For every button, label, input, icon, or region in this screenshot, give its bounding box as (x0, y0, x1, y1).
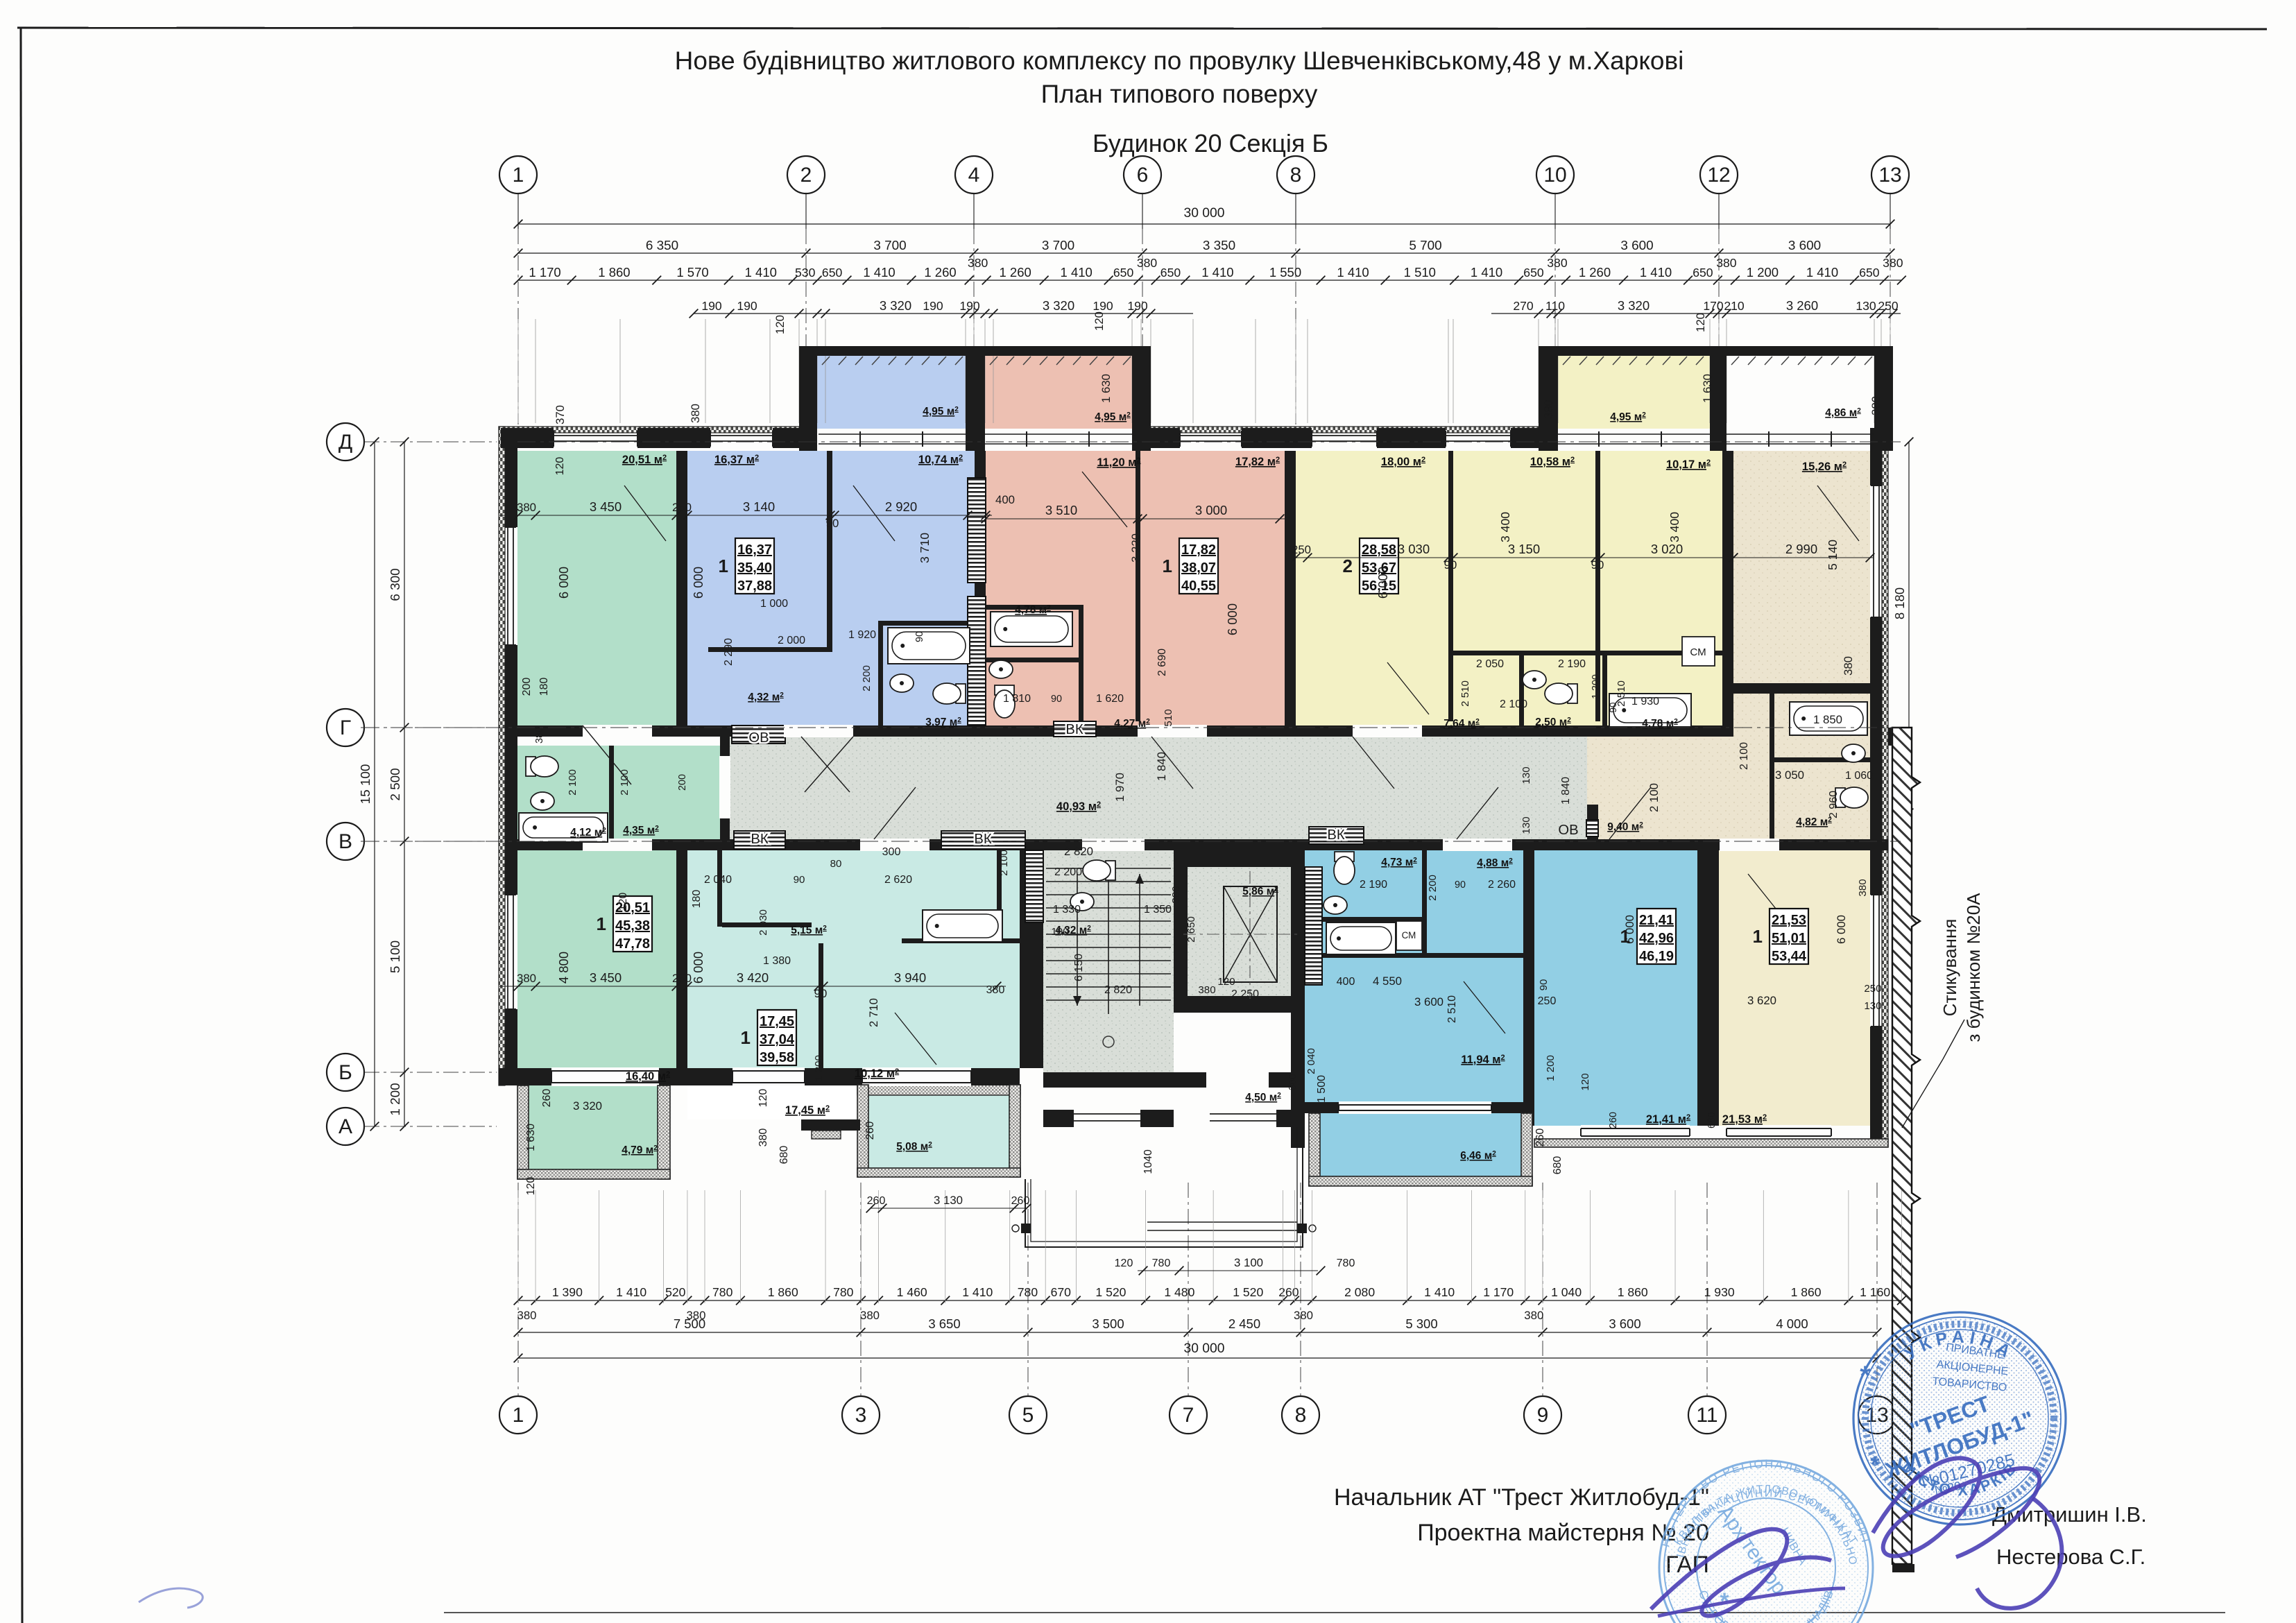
svg-text:100: 100 (1051, 926, 1068, 938)
svg-text:10,74 м2: 10,74 м2 (918, 454, 963, 466)
svg-text:30 000: 30 000 (1184, 206, 1225, 221)
svg-text:380: 380 (534, 727, 545, 744)
svg-text:2 100: 2 100 (998, 850, 1010, 876)
svg-text:3 600: 3 600 (1609, 1316, 1640, 1331)
svg-text:250: 250 (672, 501, 692, 514)
svg-text:3 140: 3 140 (743, 499, 775, 514)
svg-text:15,26 м2: 15,26 м2 (1802, 461, 1847, 473)
svg-text:46,19: 46,19 (1639, 949, 1674, 964)
svg-text:260: 260 (1011, 1195, 1030, 1207)
svg-text:10,12 м2: 10,12 м2 (855, 1067, 899, 1080)
svg-text:2 100: 2 100 (619, 769, 631, 796)
svg-text:2 710: 2 710 (867, 998, 880, 1027)
svg-text:190: 190 (1093, 299, 1113, 313)
svg-text:1: 1 (513, 1404, 524, 1427)
svg-text:530: 530 (795, 266, 816, 280)
svg-text:90: 90 (814, 987, 828, 1000)
svg-text:260: 260 (864, 1122, 876, 1140)
svg-text:1 510: 1 510 (1404, 265, 1436, 280)
svg-text:3 220: 3 220 (1129, 533, 1142, 563)
svg-text:10,58 м2: 10,58 м2 (1530, 456, 1575, 468)
svg-text:1 480: 1 480 (1164, 1285, 1194, 1299)
svg-text:1: 1 (1753, 926, 1763, 947)
svg-text:250: 250 (1878, 299, 1899, 313)
svg-text:2 450: 2 450 (1228, 1316, 1260, 1331)
svg-text:1 520: 1 520 (1233, 1285, 1263, 1299)
svg-text:ВК: ВК (974, 832, 991, 847)
svg-text:3 700: 3 700 (873, 239, 906, 253)
svg-text:2 030: 2 030 (757, 909, 769, 936)
svg-text:380: 380 (1170, 886, 1182, 903)
svg-text:1 260: 1 260 (1579, 265, 1611, 280)
svg-text:ВК: ВК (1327, 827, 1344, 843)
svg-text:3 260: 3 260 (1786, 298, 1818, 313)
svg-text:680: 680 (1552, 1156, 1563, 1175)
svg-text:3 450: 3 450 (590, 970, 622, 985)
svg-text:1 860: 1 860 (768, 1285, 798, 1299)
svg-text:2 990: 2 990 (1785, 542, 1817, 556)
svg-text:120: 120 (554, 457, 566, 476)
svg-text:780: 780 (1018, 1285, 1038, 1299)
svg-text:4,79 м2: 4,79 м2 (622, 1144, 658, 1156)
svg-text:21,53: 21,53 (1772, 913, 1806, 928)
svg-text:ВК: ВК (751, 832, 768, 847)
svg-text:12: 12 (1707, 164, 1730, 187)
svg-text:План типового поверху: План типового поверху (1041, 80, 1318, 108)
svg-text:3 320: 3 320 (1043, 298, 1074, 313)
svg-text:1 410: 1 410 (616, 1285, 646, 1299)
svg-text:17,82 м2: 17,82 м2 (1235, 456, 1280, 468)
svg-text:Б: Б (339, 1061, 352, 1084)
svg-text:2 960: 2 960 (1828, 791, 1840, 818)
svg-text:20,51 м2: 20,51 м2 (622, 454, 667, 466)
svg-text:6 000: 6 000 (1376, 567, 1390, 599)
svg-text:1 930: 1 930 (1704, 1285, 1735, 1299)
svg-text:250: 250 (1864, 983, 1881, 995)
svg-text:7 500: 7 500 (674, 1316, 705, 1331)
svg-text:1 060: 1 060 (1845, 770, 1873, 782)
svg-text:3 400: 3 400 (1498, 512, 1512, 542)
svg-text:2 100: 2 100 (567, 769, 579, 796)
svg-text:2 000: 2 000 (778, 635, 805, 646)
svg-text:1 200: 1 200 (813, 1055, 825, 1081)
svg-text:1 330: 1 330 (1053, 904, 1081, 916)
svg-text:ОВ: ОВ (748, 730, 769, 746)
svg-text:2 500: 2 500 (388, 768, 403, 800)
svg-text:*: * (1870, 1452, 1880, 1478)
svg-text:780: 780 (712, 1285, 733, 1299)
svg-text:ОВ: ОВ (1558, 823, 1578, 838)
svg-text:4,95 м2: 4,95 м2 (923, 406, 959, 418)
svg-text:5 100: 5 100 (388, 941, 403, 973)
svg-text:4,32 м2: 4,32 м2 (748, 692, 784, 703)
svg-text:380: 380 (1524, 1309, 1543, 1322)
svg-text:780: 780 (1152, 1257, 1171, 1269)
svg-text:3,97 м2: 3,97 м2 (925, 716, 961, 728)
svg-text:3 600: 3 600 (1788, 239, 1821, 253)
svg-text:1 260: 1 260 (1000, 265, 1031, 280)
svg-text:2 100: 2 100 (1500, 698, 1527, 710)
svg-text:680: 680 (778, 1146, 790, 1165)
svg-text:780: 780 (833, 1285, 854, 1299)
svg-text:15 100: 15 100 (359, 764, 373, 805)
svg-text:2 190: 2 190 (1360, 879, 1387, 891)
svg-text:90: 90 (1051, 694, 1062, 705)
svg-text:2 200: 2 200 (861, 665, 873, 692)
svg-text:1 410: 1 410 (1806, 265, 1838, 280)
svg-text:40,93 м2: 40,93 м2 (1056, 800, 1101, 813)
svg-text:2 050: 2 050 (1476, 658, 1504, 670)
svg-text:21,53 м2: 21,53 м2 (1722, 1113, 1767, 1126)
svg-text:90: 90 (826, 517, 839, 530)
svg-text:3 500: 3 500 (1092, 1316, 1124, 1331)
svg-text:2 100: 2 100 (1647, 783, 1661, 812)
svg-text:1040: 1040 (1142, 1149, 1154, 1174)
svg-text:10,17 м2: 10,17 м2 (1666, 458, 1711, 471)
svg-text:380: 380 (1842, 656, 1855, 676)
svg-text:5,08 м2: 5,08 м2 (896, 1141, 932, 1153)
svg-text:380: 380 (1883, 256, 1903, 270)
svg-text:250: 250 (672, 972, 692, 985)
svg-text:3 700: 3 700 (1042, 239, 1074, 253)
svg-text:670: 670 (1051, 1285, 1072, 1299)
svg-text:1 260: 1 260 (924, 265, 956, 280)
svg-text:4,78 м2: 4,78 м2 (1015, 604, 1051, 616)
svg-text:90: 90 (914, 631, 925, 642)
svg-text:4,88 м2: 4,88 м2 (1477, 857, 1513, 869)
svg-text:650: 650 (1523, 266, 1544, 280)
svg-text:40,55: 40,55 (1181, 578, 1216, 594)
svg-text:2 690: 2 690 (1156, 649, 1168, 676)
svg-text:170: 170 (1703, 299, 1724, 313)
svg-text:80: 80 (830, 858, 842, 870)
svg-text:СМ: СМ (1402, 930, 1416, 941)
svg-text:6 000: 6 000 (1225, 603, 1240, 635)
svg-text:3: 3 (855, 1404, 867, 1427)
svg-text:4: 4 (968, 164, 980, 187)
svg-text:17,82: 17,82 (1181, 542, 1216, 558)
svg-text:Г: Г (340, 716, 351, 739)
svg-text:1 000: 1 000 (760, 598, 788, 610)
svg-text:250: 250 (1538, 995, 1557, 1007)
svg-text:380: 380 (860, 1309, 880, 1322)
svg-text:680: 680 (1706, 1112, 1717, 1128)
svg-text:4,95 м2: 4,95 м2 (1095, 411, 1131, 423)
svg-text:Будинок 20 Секція Б: Будинок 20 Секція Б (1093, 129, 1328, 157)
svg-text:6 000: 6 000 (691, 952, 705, 984)
svg-text:3 000: 3 000 (1195, 503, 1227, 517)
svg-text:4 550: 4 550 (1373, 974, 1402, 988)
svg-text:260: 260 (541, 1089, 553, 1108)
svg-text:380: 380 (689, 404, 702, 423)
svg-text:260: 260 (867, 1195, 886, 1207)
svg-text:90: 90 (1591, 558, 1604, 572)
svg-text:380: 380 (1542, 400, 1555, 419)
svg-text:1: 1 (513, 164, 524, 187)
svg-text:5 140: 5 140 (1826, 540, 1840, 570)
svg-text:6 350: 6 350 (646, 239, 678, 253)
svg-text:180: 180 (691, 890, 703, 909)
svg-text:270: 270 (1513, 299, 1534, 313)
svg-text:1: 1 (741, 1027, 751, 1048)
svg-text:120: 120 (617, 893, 629, 911)
svg-text:4,12 м2: 4,12 м2 (570, 827, 606, 839)
svg-text:120: 120 (773, 315, 787, 334)
svg-text:2 200: 2 200 (1054, 866, 1082, 878)
svg-text:1 380: 1 380 (763, 955, 791, 967)
svg-text:2 510: 2 510 (1459, 680, 1471, 707)
svg-text:380: 380 (1294, 1309, 1313, 1322)
svg-text:51,01: 51,01 (1772, 931, 1806, 946)
svg-text:3 030: 3 030 (1398, 542, 1430, 556)
svg-text:3 020: 3 020 (1651, 542, 1683, 556)
svg-text:2 650: 2 650 (1185, 916, 1197, 943)
svg-text:8: 8 (1295, 1404, 1307, 1427)
svg-text:1 200: 1 200 (1545, 1055, 1557, 1081)
svg-text:1 410: 1 410 (1424, 1285, 1455, 1299)
svg-text:1 500: 1 500 (1316, 1075, 1328, 1103)
svg-text:4,50 м2: 4,50 м2 (1245, 1092, 1281, 1104)
svg-text:6 000: 6 000 (556, 567, 571, 599)
svg-text:17,45 м2: 17,45 м2 (785, 1104, 830, 1117)
svg-text:5 700: 5 700 (1409, 239, 1441, 253)
svg-text:СМ: СМ (1690, 646, 1706, 658)
svg-text:210: 210 (1724, 299, 1745, 313)
svg-text:3 320: 3 320 (880, 298, 911, 313)
svg-text:10: 10 (1543, 164, 1566, 187)
svg-text:5,86 м2: 5,86 м2 (1242, 886, 1278, 898)
svg-text:3 600: 3 600 (1620, 239, 1653, 253)
svg-text:1 520: 1 520 (1095, 1285, 1126, 1299)
svg-text:1 040: 1 040 (1551, 1285, 1582, 1299)
svg-text:90: 90 (794, 874, 805, 886)
svg-text:8 180: 8 180 (1892, 587, 1907, 619)
svg-text:2 620: 2 620 (884, 874, 912, 886)
svg-text:380: 380 (1137, 256, 1158, 270)
svg-text:6 000: 6 000 (1623, 915, 1636, 944)
svg-text:370: 370 (554, 405, 567, 424)
svg-text:1 390: 1 390 (552, 1285, 583, 1299)
svg-text:120: 120 (1115, 1257, 1133, 1269)
svg-text:1 460: 1 460 (897, 1285, 927, 1299)
svg-text:2 200: 2 200 (1427, 875, 1439, 901)
svg-text:1 550: 1 550 (1269, 265, 1301, 280)
svg-text:120: 120 (1093, 311, 1106, 331)
svg-text:380: 380 (1869, 396, 1883, 415)
svg-text:1: 1 (597, 913, 606, 934)
svg-text:120: 120 (1579, 1073, 1591, 1090)
svg-text:90: 90 (1608, 703, 1618, 713)
svg-text:1 840: 1 840 (1560, 777, 1572, 805)
svg-text:21,41 м2: 21,41 м2 (1646, 1113, 1690, 1126)
svg-text:1 350: 1 350 (1144, 904, 1172, 916)
svg-text:16,37 м2: 16,37 м2 (714, 454, 759, 466)
svg-text:120: 120 (757, 1089, 769, 1108)
svg-text:39,58: 39,58 (760, 1050, 794, 1065)
svg-text:1 410: 1 410 (1471, 265, 1502, 280)
svg-text:*: * (1860, 1361, 1871, 1391)
svg-text:1 170: 1 170 (529, 265, 560, 280)
svg-text:1: 1 (1163, 556, 1172, 576)
svg-text:6 000: 6 000 (691, 567, 705, 599)
svg-text:А: А (339, 1115, 352, 1138)
svg-text:380: 380 (1857, 879, 1869, 896)
svg-text:130: 130 (1520, 816, 1532, 834)
svg-text:3 150: 3 150 (1508, 542, 1540, 556)
svg-text:9,40 м2: 9,40 м2 (1607, 821, 1643, 833)
svg-text:11,20 м2: 11,20 м2 (1097, 456, 1140, 469)
svg-text:ВК: ВК (1065, 722, 1083, 737)
svg-text:1 200: 1 200 (388, 1083, 403, 1115)
svg-text:2 290: 2 290 (723, 638, 735, 666)
svg-text:4,73 м2: 4,73 м2 (1381, 857, 1417, 868)
svg-text:2,50 м2: 2,50 м2 (1535, 716, 1571, 728)
svg-text:1 630: 1 630 (1099, 374, 1113, 403)
svg-text:3 710: 3 710 (918, 533, 932, 563)
svg-text:3 510: 3 510 (1045, 503, 1077, 517)
svg-text:650: 650 (1113, 266, 1134, 280)
svg-text:190: 190 (959, 299, 980, 313)
svg-text:21,41: 21,41 (1639, 913, 1674, 928)
svg-text:35,40: 35,40 (737, 560, 772, 576)
svg-text:3 650: 3 650 (928, 1316, 960, 1331)
svg-text:7: 7 (1183, 1404, 1194, 1427)
svg-text:200: 200 (521, 678, 533, 696)
svg-text:2: 2 (1343, 556, 1353, 576)
svg-text:3 450: 3 450 (590, 499, 622, 514)
svg-text:1 160: 1 160 (1860, 1285, 1890, 1299)
svg-text:3 400: 3 400 (1668, 512, 1681, 542)
svg-text:90: 90 (1538, 979, 1550, 991)
svg-text:42,96: 42,96 (1639, 931, 1674, 946)
svg-text:4,35 м2: 4,35 м2 (623, 825, 659, 836)
svg-text:3 940: 3 940 (894, 970, 926, 985)
svg-text:380: 380 (517, 1309, 537, 1322)
svg-text:130: 130 (1864, 1000, 1881, 1012)
svg-text:130: 130 (1520, 766, 1532, 784)
svg-text:2 250: 2 250 (1231, 988, 1259, 1000)
svg-text:200: 200 (677, 774, 688, 791)
svg-text:9: 9 (1537, 1404, 1549, 1427)
svg-text:130: 130 (1856, 299, 1876, 313)
svg-text:6 150: 6 150 (1073, 954, 1085, 981)
svg-text:Стикування: Стикування (1939, 919, 1960, 1017)
svg-text:47,78: 47,78 (615, 936, 650, 952)
svg-text:16,37: 16,37 (737, 542, 772, 558)
svg-text:6 000: 6 000 (1835, 915, 1848, 944)
svg-text:650: 650 (822, 266, 843, 280)
svg-text:4 000: 4 000 (1776, 1316, 1808, 1331)
svg-text:16,40 м2: 16,40 м2 (626, 1070, 670, 1083)
svg-text:11: 11 (1696, 1404, 1717, 1427)
svg-text:650: 650 (1859, 266, 1880, 280)
svg-text:30 000: 30 000 (1184, 1341, 1225, 1356)
svg-text:120: 120 (1217, 976, 1235, 988)
svg-text:1 200: 1 200 (1591, 674, 1602, 699)
svg-text:1 630: 1 630 (525, 1124, 537, 1151)
svg-text:1 410: 1 410 (1061, 265, 1093, 280)
svg-text:3 050: 3 050 (1775, 768, 1804, 782)
svg-text:3 100: 3 100 (1234, 1256, 1263, 1269)
svg-text:18,00 м2: 18,00 м2 (1381, 456, 1425, 468)
svg-text:4 800: 4 800 (556, 952, 571, 984)
svg-text:37,04: 37,04 (760, 1032, 795, 1047)
svg-text:Начальник АТ "Трест Житлобуд-1: Начальник АТ "Трест Житлобуд-1" (1334, 1484, 1709, 1511)
svg-text:3 350: 3 350 (1203, 239, 1235, 253)
svg-text:1 410: 1 410 (1640, 265, 1672, 280)
svg-text:Дмитришин І.В.: Дмитришин І.В. (1992, 1502, 2147, 1527)
svg-text:90: 90 (1444, 558, 1457, 572)
svg-text:90: 90 (1455, 879, 1466, 891)
svg-text:2 190: 2 190 (1558, 658, 1586, 670)
svg-text:1 810: 1 810 (1003, 693, 1031, 705)
svg-text:1 840: 1 840 (1155, 752, 1168, 781)
svg-text:1 620: 1 620 (1096, 693, 1124, 705)
svg-text:2 080: 2 080 (1344, 1285, 1375, 1299)
svg-text:190: 190 (923, 299, 943, 313)
svg-text:1 410: 1 410 (962, 1285, 993, 1299)
svg-text:6: 6 (1137, 164, 1149, 187)
svg-text:380: 380 (986, 984, 1005, 996)
svg-text:1 860: 1 860 (598, 265, 630, 280)
svg-text:1 570: 1 570 (676, 265, 708, 280)
svg-text:Нестерова С.Г.: Нестерова С.Г. (1996, 1545, 2145, 1569)
svg-text:5,15 м2: 5,15 м2 (791, 925, 827, 936)
svg-text:6 300: 6 300 (388, 568, 403, 601)
svg-text:650: 650 (1160, 266, 1181, 280)
svg-text:2 040: 2 040 (704, 874, 732, 886)
svg-text:1 410: 1 410 (863, 265, 895, 280)
svg-text:520: 520 (665, 1285, 686, 1299)
svg-text:380: 380 (1547, 256, 1568, 270)
svg-text:510: 510 (1163, 709, 1174, 726)
svg-text:380: 380 (1287, 1074, 1299, 1090)
svg-text:2 920: 2 920 (885, 499, 917, 514)
svg-text:3 130: 3 130 (934, 1194, 963, 1207)
svg-text:380: 380 (968, 256, 988, 270)
svg-text:5: 5 (1022, 1404, 1034, 1427)
svg-text:1 930: 1 930 (1631, 696, 1659, 707)
svg-text:190: 190 (737, 299, 757, 313)
svg-text:2 260: 2 260 (1488, 879, 1516, 891)
svg-text:8: 8 (1290, 164, 1302, 187)
svg-text:13: 13 (1878, 164, 1901, 187)
svg-text:180: 180 (538, 678, 550, 696)
svg-text:380: 380 (1198, 984, 1215, 996)
svg-text:45,38: 45,38 (615, 918, 650, 934)
svg-text:1 860: 1 860 (1791, 1285, 1822, 1299)
svg-text:300: 300 (882, 846, 901, 858)
svg-text:120: 120 (1694, 313, 1707, 332)
svg-text:190: 190 (1127, 299, 1148, 313)
svg-text:1 630: 1 630 (1701, 374, 1714, 403)
svg-text:4,82 м2: 4,82 м2 (1796, 816, 1832, 828)
svg-text:4,95 м2: 4,95 м2 (1610, 411, 1646, 423)
svg-text:53,44: 53,44 (1772, 949, 1807, 964)
svg-text:260: 260 (1534, 1128, 1546, 1147)
svg-text:6,46 м2: 6,46 м2 (1460, 1150, 1496, 1162)
svg-text:380: 380 (517, 501, 536, 514)
svg-text:120: 120 (525, 1177, 537, 1196)
svg-text:В: В (339, 830, 352, 853)
svg-text:110: 110 (1545, 299, 1565, 313)
svg-text:38,07: 38,07 (1181, 560, 1216, 576)
svg-text:1 410: 1 410 (1337, 265, 1369, 280)
svg-text:650: 650 (1693, 266, 1713, 280)
svg-text:190: 190 (701, 299, 722, 313)
svg-text:1 410: 1 410 (1201, 265, 1233, 280)
svg-text:780: 780 (1337, 1257, 1355, 1269)
